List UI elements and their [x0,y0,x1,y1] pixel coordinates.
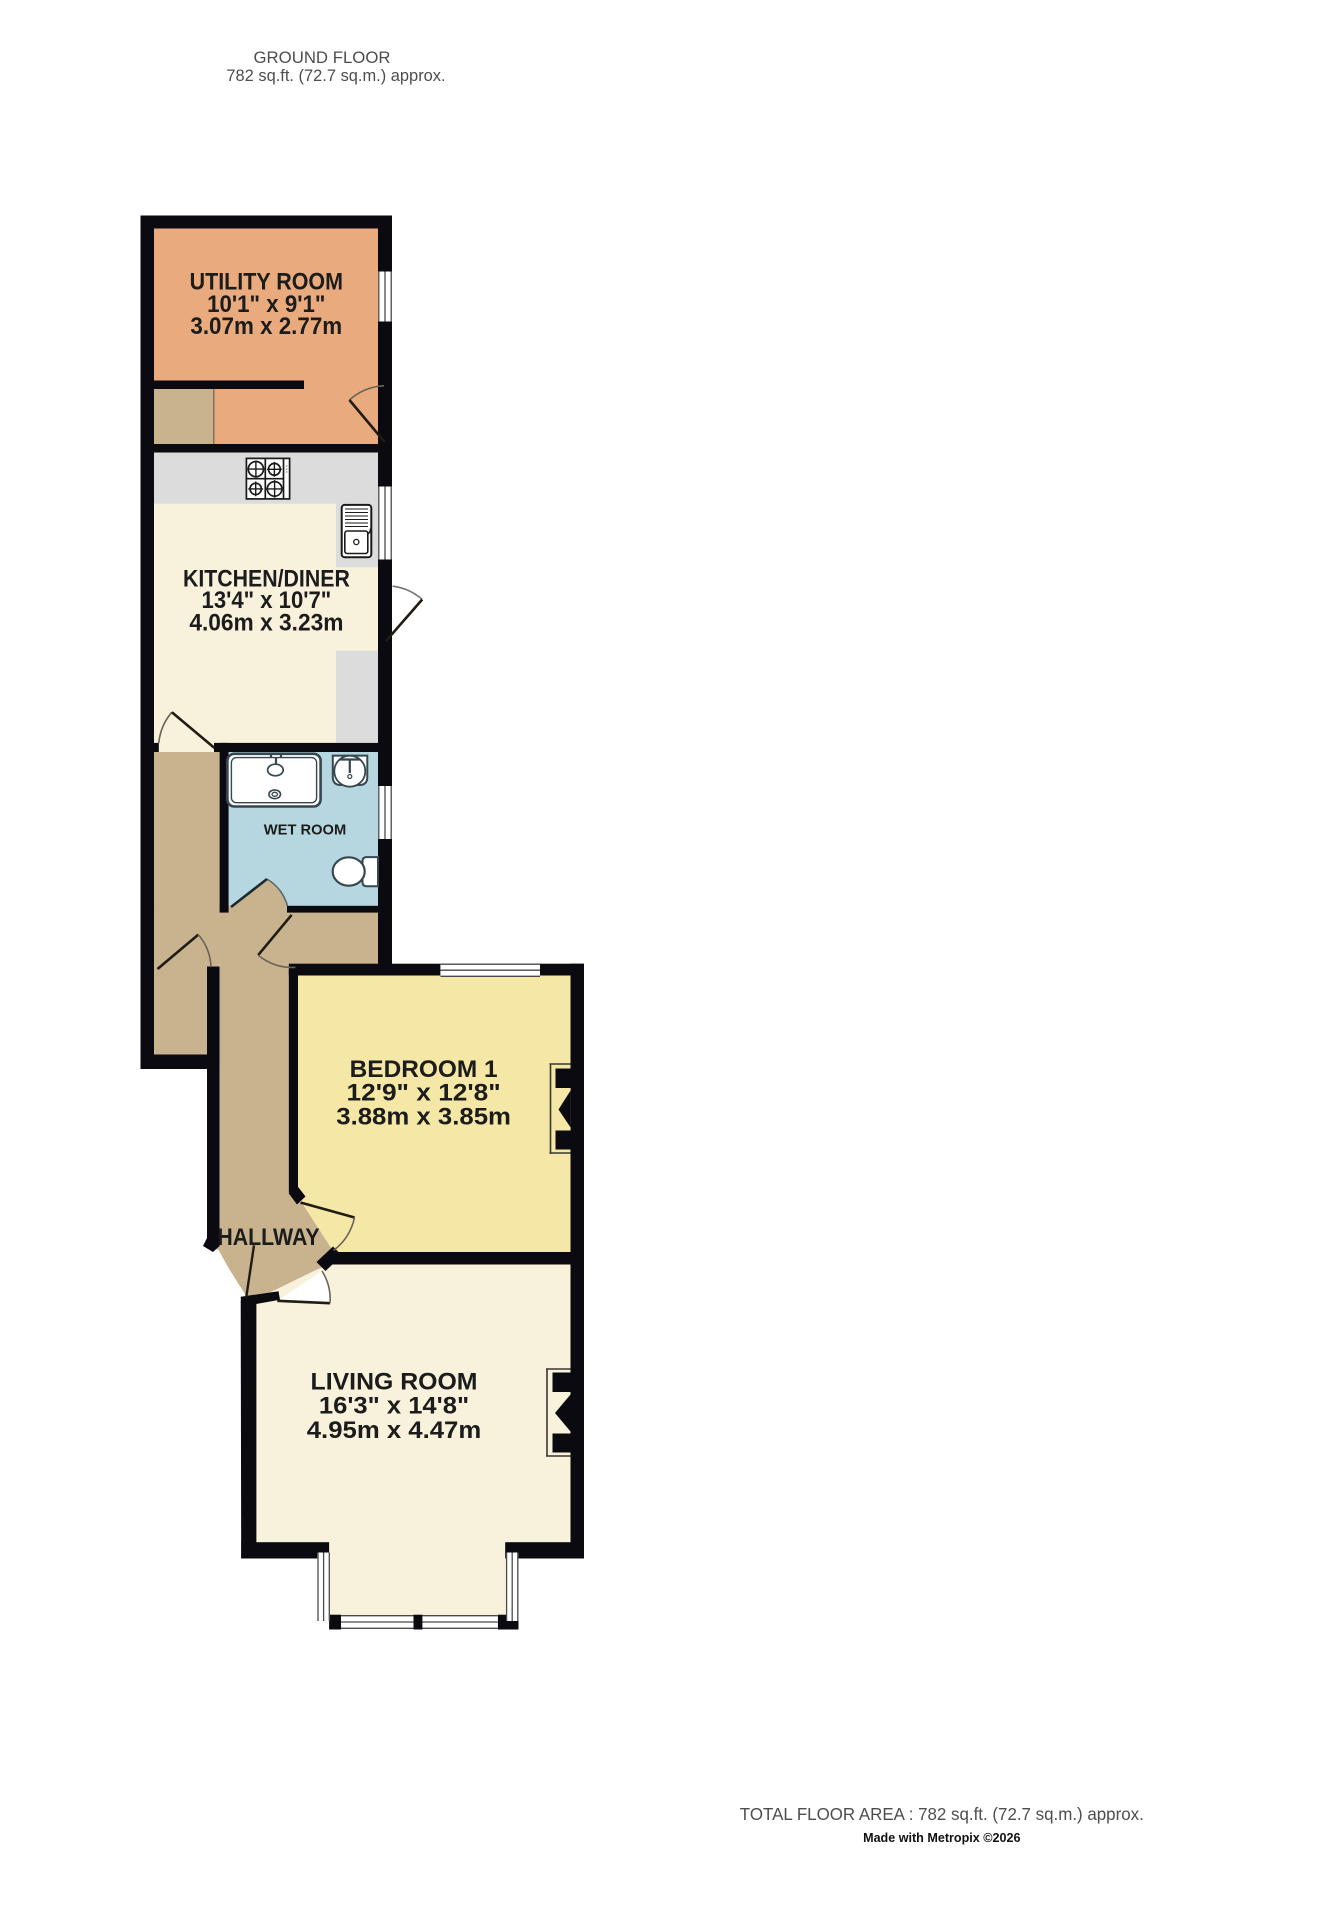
svg-text:16'3" x 14'8": 16'3" x 14'8" [319,1393,469,1420]
svg-text:4.06m x 3.23m: 4.06m x 3.23m [189,610,343,637]
svg-text:TOTAL FLOOR AREA : 782 sq.ft.: TOTAL FLOOR AREA : 782 sq.ft. (72.7 sq.m… [740,1804,1144,1824]
svg-text:4.95m x 4.47m: 4.95m x 4.47m [307,1417,482,1444]
svg-text:HALLWAY: HALLWAY [217,1224,319,1251]
svg-text:Made with Metropix ©2026: Made with Metropix ©2026 [863,1831,1020,1845]
svg-text:3.88m x 3.85m: 3.88m x 3.85m [336,1104,511,1131]
svg-text:GROUND FLOOR: GROUND FLOOR [254,49,391,67]
svg-text:782 sq.ft. (72.7 sq.m.) approx: 782 sq.ft. (72.7 sq.m.) approx. [226,67,445,85]
svg-text:3.07m x 2.77m: 3.07m x 2.77m [190,313,342,340]
svg-text:LIVING ROOM: LIVING ROOM [311,1369,478,1396]
svg-text:WET ROOM: WET ROOM [264,821,346,838]
